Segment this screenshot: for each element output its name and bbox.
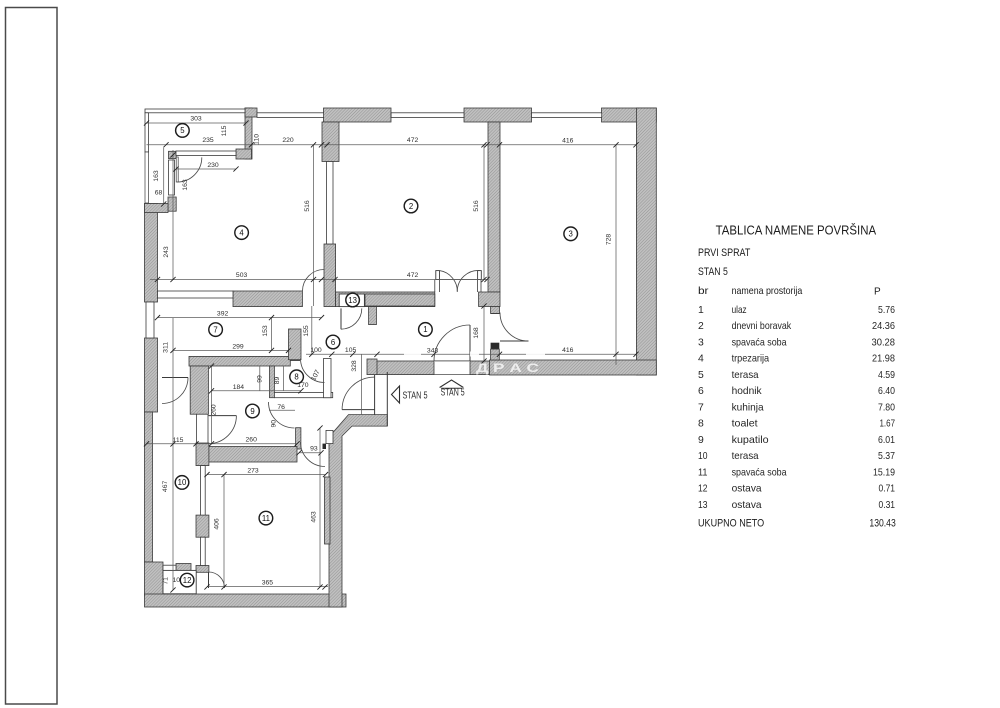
svg-text:68: 68: [155, 190, 163, 197]
svg-text:11: 11: [262, 514, 270, 523]
svg-text:7.80: 7.80: [878, 402, 895, 413]
svg-text:10: 10: [178, 478, 187, 487]
svg-text:467: 467: [162, 481, 169, 493]
svg-text:184: 184: [233, 384, 245, 391]
svg-text:9: 9: [698, 435, 704, 446]
svg-text:416: 416: [562, 347, 574, 354]
svg-text:260: 260: [211, 404, 218, 416]
svg-text:365: 365: [262, 580, 274, 587]
svg-text:3: 3: [569, 230, 573, 239]
svg-text:243: 243: [163, 246, 170, 258]
svg-text:terasa: terasa: [732, 370, 759, 381]
svg-text:terasa: terasa: [732, 451, 759, 462]
svg-text:89: 89: [274, 377, 281, 385]
svg-text:12: 12: [183, 576, 192, 585]
svg-text:406: 406: [214, 518, 221, 530]
svg-text:4: 4: [698, 354, 704, 365]
svg-text:472: 472: [407, 137, 419, 144]
svg-text:416: 416: [562, 138, 574, 145]
svg-text:6.01: 6.01: [878, 435, 895, 446]
svg-text:99: 99: [257, 375, 264, 383]
svg-text:PRVI SPRAT: PRVI SPRAT: [698, 247, 751, 259]
svg-text:260: 260: [246, 437, 258, 444]
svg-text:ostava: ostava: [732, 484, 762, 495]
svg-text:1.67: 1.67: [880, 419, 896, 430]
svg-text:STAN 5: STAN 5: [403, 391, 428, 402]
svg-text:105: 105: [345, 347, 357, 354]
svg-text:STAN 5: STAN 5: [441, 388, 465, 399]
svg-text:110: 110: [254, 134, 261, 145]
svg-text:163: 163: [182, 179, 189, 191]
svg-text:1: 1: [698, 305, 704, 316]
svg-text:303: 303: [190, 116, 202, 123]
svg-text:503: 503: [236, 272, 248, 279]
svg-text:namena prostorija: namena prostorija: [732, 285, 803, 297]
svg-text:P: P: [874, 286, 881, 297]
svg-text:516: 516: [304, 200, 311, 212]
svg-text:11: 11: [698, 467, 708, 478]
svg-text:ostava: ostava: [732, 500, 762, 511]
svg-text:toalet: toalet: [732, 419, 758, 430]
svg-text:728: 728: [605, 234, 612, 246]
svg-text:24.36: 24.36: [872, 321, 895, 332]
svg-text:13: 13: [698, 500, 708, 511]
svg-text:UKUPNO NETO: UKUPNO NETO: [698, 518, 765, 530]
svg-text:5: 5: [698, 370, 704, 381]
svg-text:516: 516: [473, 200, 480, 212]
svg-text:30.28: 30.28: [872, 337, 896, 348]
svg-text:3: 3: [698, 337, 704, 348]
svg-text:4.59: 4.59: [878, 370, 895, 381]
svg-text:5.76: 5.76: [878, 305, 895, 316]
svg-text:0.71: 0.71: [879, 484, 896, 495]
svg-text:4: 4: [239, 228, 244, 237]
svg-text:235: 235: [202, 137, 214, 144]
svg-text:kuhinja: kuhinja: [732, 402, 764, 413]
svg-text:130.43: 130.43: [869, 518, 895, 530]
svg-text:6: 6: [698, 386, 704, 397]
svg-text:299: 299: [232, 344, 244, 351]
svg-text:dnevni boravak: dnevni boravak: [732, 321, 792, 332]
svg-text:STAN 5: STAN 5: [698, 266, 728, 278]
svg-text:5: 5: [180, 126, 185, 135]
svg-text:76: 76: [277, 404, 285, 411]
svg-text:spavaća soba: spavaća soba: [732, 337, 787, 348]
svg-text:13: 13: [348, 296, 357, 305]
svg-text:220: 220: [282, 137, 294, 144]
svg-text:6: 6: [331, 338, 335, 347]
svg-text:2: 2: [698, 321, 704, 332]
svg-text:90: 90: [271, 420, 278, 428]
svg-text:TABLICA NAMENE POVRŠINA: TABLICA NAMENE POVRŠINA: [716, 223, 877, 238]
svg-text:472: 472: [407, 272, 419, 279]
svg-text:2: 2: [409, 202, 413, 211]
svg-text:155: 155: [303, 325, 310, 337]
svg-text:0.31: 0.31: [879, 500, 896, 511]
svg-text:273: 273: [247, 468, 259, 475]
svg-text:8: 8: [294, 373, 298, 382]
svg-text:trpezarija: trpezarija: [732, 354, 770, 365]
svg-text:6.40: 6.40: [878, 386, 895, 397]
svg-text:21.98: 21.98: [872, 354, 895, 365]
svg-text:br: br: [698, 285, 709, 297]
svg-text:100: 100: [310, 347, 322, 354]
svg-text:71: 71: [162, 577, 169, 585]
svg-text:230: 230: [207, 162, 219, 169]
svg-text:hodnik: hodnik: [732, 386, 763, 397]
svg-text:168: 168: [473, 327, 480, 339]
svg-text:9: 9: [250, 407, 254, 416]
svg-text:153: 153: [262, 325, 269, 337]
svg-text:163: 163: [153, 170, 160, 182]
svg-text:392: 392: [217, 311, 229, 318]
svg-text:kupatilo: kupatilo: [732, 435, 769, 446]
svg-text:7: 7: [698, 402, 704, 413]
svg-text:5.37: 5.37: [878, 451, 895, 462]
svg-text:343: 343: [427, 347, 439, 354]
svg-text:93: 93: [310, 446, 318, 453]
svg-text:ulaz: ulaz: [732, 305, 747, 316]
svg-text:Д Р А С: Д Р А С: [476, 363, 539, 375]
svg-text:8: 8: [698, 419, 704, 430]
svg-text:115: 115: [221, 125, 228, 136]
svg-text:7: 7: [213, 325, 217, 334]
svg-text:115: 115: [173, 437, 184, 444]
svg-text:15.19: 15.19: [873, 467, 895, 478]
svg-text:spavaća soba: spavaća soba: [732, 467, 787, 478]
svg-text:12: 12: [698, 484, 708, 495]
svg-text:1: 1: [423, 325, 427, 334]
svg-text:463: 463: [311, 511, 318, 523]
svg-text:328: 328: [351, 360, 358, 372]
svg-text:311: 311: [163, 342, 170, 353]
svg-text:10: 10: [698, 451, 708, 462]
